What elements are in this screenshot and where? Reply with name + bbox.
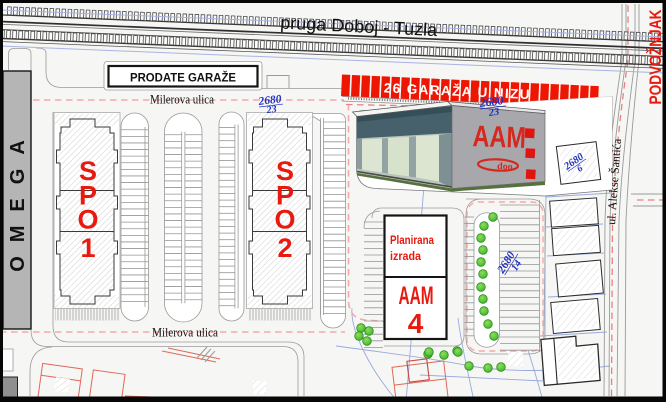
svg-text:O: O <box>77 205 98 235</box>
svg-text:Milerova ulica: Milerova ulica <box>150 92 214 107</box>
svg-text:Milerova ulica: Milerova ulica <box>152 325 218 340</box>
svg-text:doo: doo <box>497 161 513 173</box>
svg-text:izrada: izrada <box>390 249 421 263</box>
svg-text:OMEGA: OMEGA <box>7 126 29 272</box>
svg-text:AAM: AAM <box>472 119 526 154</box>
svg-text:2: 2 <box>277 233 292 263</box>
svg-text:23: 23 <box>487 107 500 119</box>
svg-text:4: 4 <box>408 308 424 339</box>
svg-text:PRODATE GARAŽE: PRODATE GARAŽE <box>130 72 236 85</box>
svg-text:O: O <box>274 205 295 235</box>
svg-text:Planirana: Planirana <box>390 233 434 247</box>
svg-text:AAM: AAM <box>399 282 434 310</box>
svg-text:PODVOŽNJAK: PODVOŽNJAK <box>646 9 665 104</box>
svg-text:1: 1 <box>80 233 95 263</box>
